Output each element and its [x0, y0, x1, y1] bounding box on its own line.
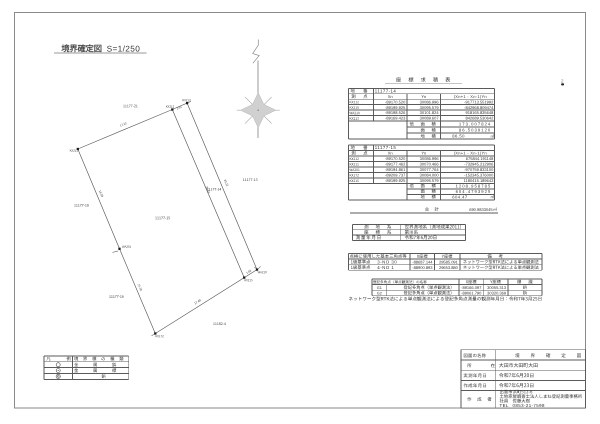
- svg-text:30095.579: 30095.579: [420, 105, 440, 110]
- svg-text:11177-15: 11177-15: [375, 145, 397, 150]
- svg-text:-917713.551992: -917713.551992: [464, 99, 494, 104]
- svg-text:30095.579: 30095.579: [420, 178, 440, 183]
- svg-text:-152345.376000: -152345.376000: [464, 173, 494, 178]
- svg-text:0853-21-7598: 0853-21-7598: [513, 403, 546, 408]
- svg-text:604.47: 604.47: [452, 194, 468, 199]
- svg-text:1208.958785: 1208.958785: [456, 183, 492, 188]
- svg-text:173.007824: 173.007824: [459, 122, 491, 127]
- svg-text:30086.996: 30086.996: [420, 99, 440, 104]
- svg-text:-89169.423: -89169.423: [385, 116, 406, 121]
- svg-text:842689.530642: 842689.530642: [465, 116, 494, 121]
- svg-text:11177-14: 11177-14: [375, 89, 397, 94]
- svg-text:S=1/250: S=1/250: [107, 43, 141, 53]
- svg-text:4-NO 1: 4-NO 1: [377, 265, 394, 270]
- svg-text:690.9833045: 690.9833045: [469, 207, 493, 212]
- svg-text:-88687.144: -88687.144: [412, 260, 433, 265]
- svg-text:-89170.520: -89170.520: [385, 99, 406, 104]
- svg-text:-89166.097: -89166.097: [461, 285, 482, 290]
- svg-text:2: 2: [561, 78, 564, 83]
- svg-text:-89170.520: -89170.520: [385, 156, 406, 161]
- svg-text:604.4793925: 604.4793925: [456, 189, 492, 194]
- svg-text:30084.000: 30084.000: [420, 173, 440, 178]
- svg-text:-732945.212906: -732945.212906: [464, 162, 494, 167]
- svg-text:30089.607: 30089.607: [420, 116, 440, 121]
- svg-text:-970759.833100: -970759.833100: [464, 167, 494, 172]
- svg-text:Yn: Yn: [421, 151, 426, 156]
- svg-text:86.50: 86.50: [452, 134, 465, 139]
- svg-text:30070.466: 30070.466: [420, 162, 440, 167]
- svg-text:G1: G1: [377, 286, 382, 290]
- svg-text:-89198.526: -89198.526: [385, 110, 406, 115]
- svg-text:-88900.893: -88900.893: [412, 265, 433, 270]
- svg-text:30320.369: 30320.369: [487, 291, 507, 296]
- svg-text:29653.880: 29653.880: [439, 265, 459, 270]
- svg-text:29585.091: 29585.091: [439, 260, 459, 265]
- svg-text:3-NO 30: 3-NO 30: [377, 260, 397, 265]
- svg-text:Yn: Yn: [421, 94, 426, 99]
- svg-text:-89177.462: -89177.462: [385, 162, 406, 167]
- svg-text:-89199.925: -89199.925: [385, 178, 406, 183]
- svg-text:30101.824: 30101.824: [420, 110, 440, 115]
- svg-text:TEL: TEL: [500, 403, 509, 408]
- svg-text:-89194.861: -89194.861: [385, 167, 406, 172]
- svg-text:675844.191148: 675844.191148: [466, 156, 494, 161]
- svg-text:30086.996: 30086.996: [420, 156, 440, 161]
- svg-text:30055.313: 30055.313: [487, 285, 507, 290]
- svg-text:(Xn+1 - Xn-1)Yn: (Xn+1 - Xn-1)Yn: [454, 151, 487, 156]
- svg-text:-89061.790: -89061.790: [461, 291, 482, 296]
- svg-text:Xn: Xn: [388, 151, 393, 156]
- svg-text:-842968.809474: -842968.809474: [464, 105, 494, 110]
- svg-text:918165.835648: 918165.835648: [465, 110, 494, 115]
- svg-text:-89209.737: -89209.737: [385, 173, 406, 178]
- svg-text:86.5039120: 86.5039120: [459, 128, 491, 133]
- svg-text:Xn: Xn: [388, 94, 393, 99]
- svg-text:1180415.189643: 1180415.189643: [464, 178, 495, 183]
- svg-text:(Xn+1 - Xn-1)Yn: (Xn+1 - Xn-1)Yn: [454, 94, 487, 99]
- svg-text:30077.764: 30077.764: [420, 167, 440, 172]
- svg-text:-89199.925: -89199.925: [385, 105, 406, 110]
- svg-text:G2: G2: [377, 292, 382, 296]
